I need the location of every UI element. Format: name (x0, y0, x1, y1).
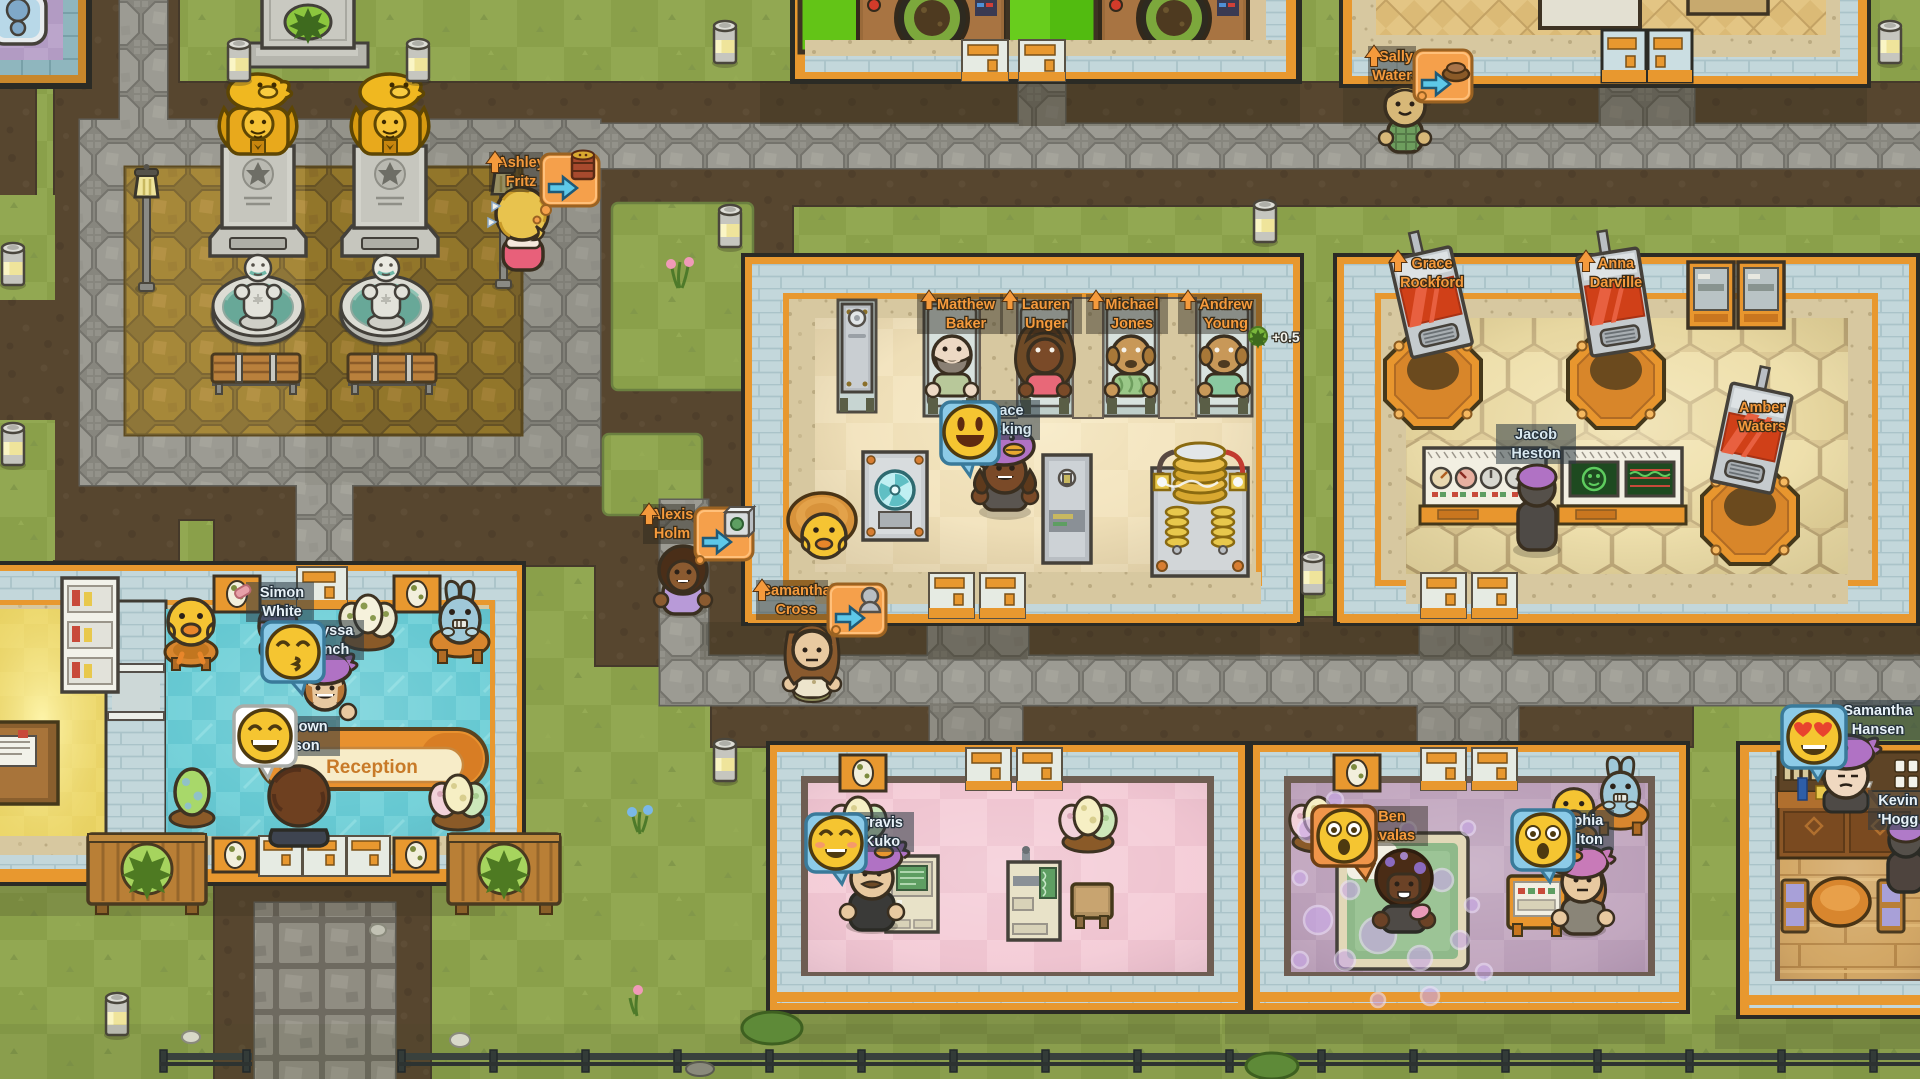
svg-text:Matthew: Matthew (937, 297, 996, 313)
svg-text:Michael: Michael (1105, 297, 1158, 313)
svg-text:'Hogg: 'Hogg (1878, 812, 1919, 828)
svg-text:Samantha: Samantha (761, 583, 831, 599)
svg-text:Kuko: Kuko (864, 834, 900, 850)
svg-text:Unger: Unger (1025, 316, 1067, 332)
svg-text:Waters: Waters (1738, 419, 1786, 435)
svg-text:Cross: Cross (775, 602, 816, 618)
svg-text:Hansen: Hansen (1852, 722, 1904, 738)
svg-text:Kevin: Kevin (1878, 793, 1918, 809)
svg-text:Simon: Simon (260, 585, 304, 601)
svg-text:Amber: Amber (1739, 400, 1785, 416)
svg-text:+0.5: +0.5 (1272, 329, 1300, 345)
svg-text:Darville: Darville (1590, 275, 1642, 291)
svg-text:Reception: Reception (326, 757, 418, 778)
svg-text:White: White (262, 604, 301, 620)
svg-text:Andrew: Andrew (1199, 297, 1253, 313)
svg-text:Ashley: Ashley (497, 155, 545, 171)
svg-text:Fritz: Fritz (506, 174, 537, 190)
svg-text:Sally: Sally (1379, 49, 1413, 65)
svg-text:Heston: Heston (1511, 446, 1560, 462)
svg-text:Lauren: Lauren (1022, 297, 1070, 313)
svg-text:Jones: Jones (1111, 316, 1153, 332)
svg-text:Ben: Ben (1378, 809, 1405, 825)
svg-text:Young: Young (1204, 316, 1248, 332)
svg-text:Jacob: Jacob (1515, 427, 1557, 443)
svg-text:Anna: Anna (1598, 256, 1635, 272)
svg-text:Rockford: Rockford (1400, 275, 1464, 291)
svg-text:Holm: Holm (654, 526, 690, 542)
svg-text:Baker: Baker (946, 316, 987, 332)
svg-text:Samantha: Samantha (1843, 703, 1913, 719)
svg-text:Grace: Grace (1411, 256, 1452, 272)
